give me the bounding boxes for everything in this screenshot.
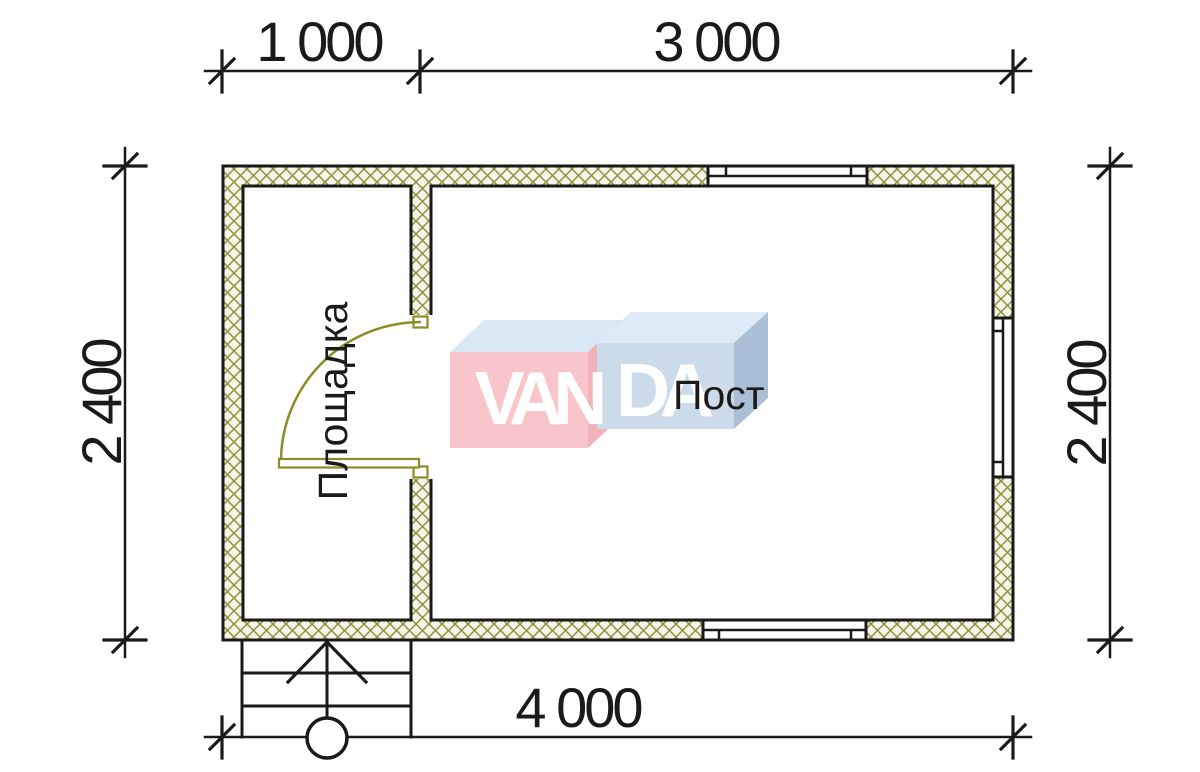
dim-bottom-4000-label: 4 000 [515,676,641,739]
window-right [993,318,1013,477]
room-label-post: Пост [673,372,765,418]
logo-text-van: VAN [475,356,604,440]
dimension-left: 2 400 [70,148,146,657]
dim-top-3000-label: 3 000 [653,10,779,73]
dim-left-2400-label: 2 400 [70,340,133,466]
door-opening [408,315,434,479]
floor-plan-drawing: 1 000 3 000 4 000 2 400 2 400 VAN DA [0,0,1200,772]
dimension-right: 2 400 [1055,148,1131,657]
floor-plan-canvas: 1 000 3 000 4 000 2 400 2 400 VAN DA [0,0,1200,772]
window-top [708,166,867,186]
axis-marker-circle [307,718,347,758]
dim-right-2400-label: 2 400 [1055,341,1118,467]
dimension-top: 1 000 3 000 [205,10,1031,92]
entrance-stairs [242,641,411,758]
dim-top-1000-label: 1 000 [256,10,382,73]
window-bottom [703,620,866,640]
room-label-ploshchadka: Площадка [310,301,356,500]
